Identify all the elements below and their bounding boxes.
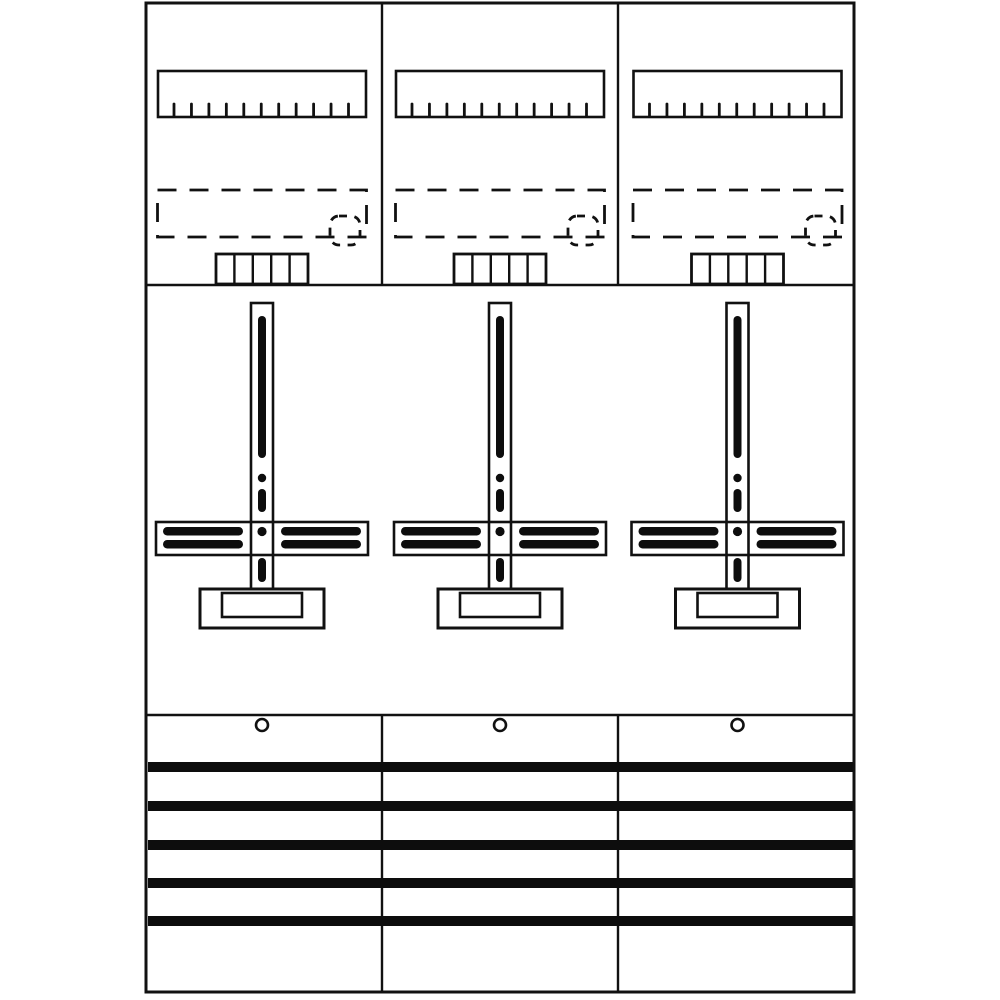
cross-base bbox=[200, 589, 324, 628]
dashed-mounting-zone bbox=[396, 190, 605, 237]
seal-marker bbox=[806, 216, 836, 245]
cross-vertical-slot bbox=[258, 489, 266, 512]
cross-screw-dot bbox=[258, 474, 266, 482]
cross-horizontal-slot bbox=[519, 540, 599, 549]
cross-horizontal-slot bbox=[639, 527, 719, 536]
cross-screw-dot bbox=[496, 474, 504, 482]
dashed-mounting-zone bbox=[158, 190, 367, 237]
cross-horizontal-slot bbox=[163, 527, 243, 536]
busbar-support-comb bbox=[692, 254, 784, 284]
cross-vertical-slot bbox=[496, 316, 504, 458]
seal-marker bbox=[568, 216, 598, 245]
cross-vertical-slot bbox=[258, 558, 266, 582]
cross-vertical-slot bbox=[734, 316, 742, 458]
cross-horizontal-slot bbox=[281, 540, 361, 549]
busbar bbox=[148, 762, 853, 772]
busbar bbox=[148, 801, 853, 811]
busbar bbox=[148, 840, 853, 850]
busbar bbox=[148, 878, 853, 888]
cross-horizontal-slot bbox=[163, 540, 243, 549]
cross-screw-dot bbox=[733, 474, 741, 482]
cross-horizontal-slot bbox=[401, 527, 481, 536]
cross-center-dot bbox=[495, 527, 504, 536]
cross-horizontal-slot bbox=[401, 540, 481, 549]
cross-vertical-slot bbox=[734, 558, 742, 582]
mounting-hole-circle bbox=[732, 719, 744, 731]
cross-vertical-slot bbox=[496, 558, 504, 582]
page bbox=[0, 0, 1000, 1000]
cross-vertical-slot bbox=[496, 489, 504, 512]
cross-horizontal-slot bbox=[757, 527, 837, 536]
busbar-support-comb bbox=[216, 254, 308, 284]
cross-horizontal-slot bbox=[639, 540, 719, 549]
mounting-hole-circle bbox=[494, 719, 506, 731]
seal-marker bbox=[330, 216, 360, 245]
cross-horizontal-slot bbox=[519, 527, 599, 536]
busbar-support-comb bbox=[454, 254, 546, 284]
cross-center-dot bbox=[733, 527, 742, 536]
mounting-hole-circle bbox=[256, 719, 268, 731]
cross-base bbox=[438, 589, 562, 628]
cross-horizontal-slot bbox=[281, 527, 361, 536]
cross-horizontal-slot bbox=[757, 540, 837, 549]
cross-vertical-slot bbox=[258, 316, 266, 458]
meter-panel-drawing bbox=[0, 0, 1000, 1000]
dashed-mounting-zone bbox=[633, 190, 842, 237]
busbar bbox=[148, 916, 853, 926]
cross-base bbox=[676, 589, 800, 628]
cross-vertical-slot bbox=[734, 489, 742, 512]
cross-center-dot bbox=[257, 527, 266, 536]
